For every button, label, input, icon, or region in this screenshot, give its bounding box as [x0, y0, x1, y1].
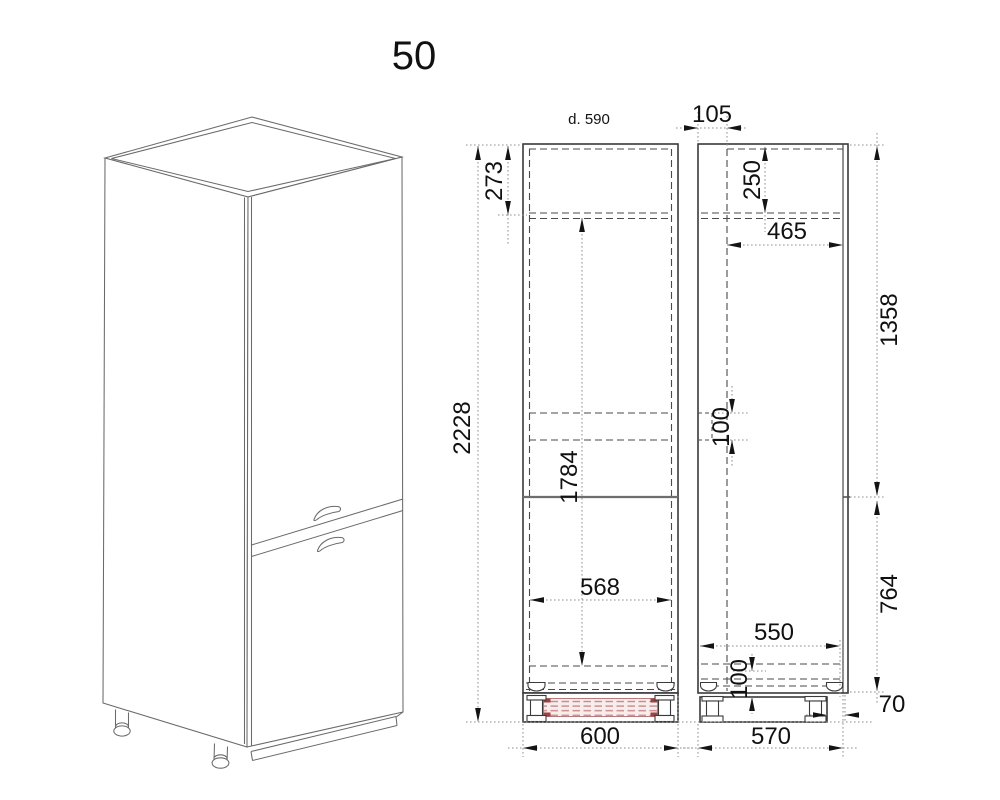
dim-shelf-slot: 100 — [708, 407, 735, 447]
dim-lower-height: 764 — [876, 574, 903, 614]
technical-drawing-page: 50 d. 590 2228 273 1784 568 600 105 250 … — [0, 0, 1000, 800]
door-front — [247, 157, 403, 747]
front-left-leg — [114, 710, 130, 737]
dim-bottom-depth: 550 — [754, 619, 794, 646]
dim-top-section: 273 — [481, 161, 508, 201]
dim-door-offset: 105 — [692, 101, 732, 128]
dim-top-depth: 465 — [767, 218, 807, 245]
front-view — [523, 144, 678, 722]
front-corner-leg — [212, 744, 229, 769]
dim-plinth-setback: 70 — [879, 691, 906, 718]
leg-cup — [701, 683, 717, 692]
drawing-number: 50 — [392, 34, 437, 78]
dim-overall-width: 600 — [580, 723, 620, 750]
leg-cup — [528, 683, 545, 691]
depth-note-label: d. 590 — [568, 111, 610, 128]
leg-cup — [827, 683, 843, 692]
front-carcass — [523, 144, 678, 693]
dim-overall-depth: 570 — [751, 723, 791, 750]
dim-total-height: 2228 — [449, 401, 476, 454]
cabinet-technical-drawing: 50 d. 590 2228 273 1784 568 600 105 250 … — [0, 0, 1000, 800]
dim-upper-height: 1358 — [876, 293, 903, 346]
side-panel — [103, 158, 248, 747]
dim-top-inset: 250 — [739, 160, 766, 200]
plinth-hatch-panel — [544, 699, 658, 717]
isometric-view — [103, 117, 403, 768]
leg-cup — [657, 683, 674, 692]
dim-interior-height: 1784 — [556, 450, 583, 503]
dim-interior-width: 568 — [580, 574, 620, 601]
dim-bottom-inset: 100 — [726, 659, 753, 699]
